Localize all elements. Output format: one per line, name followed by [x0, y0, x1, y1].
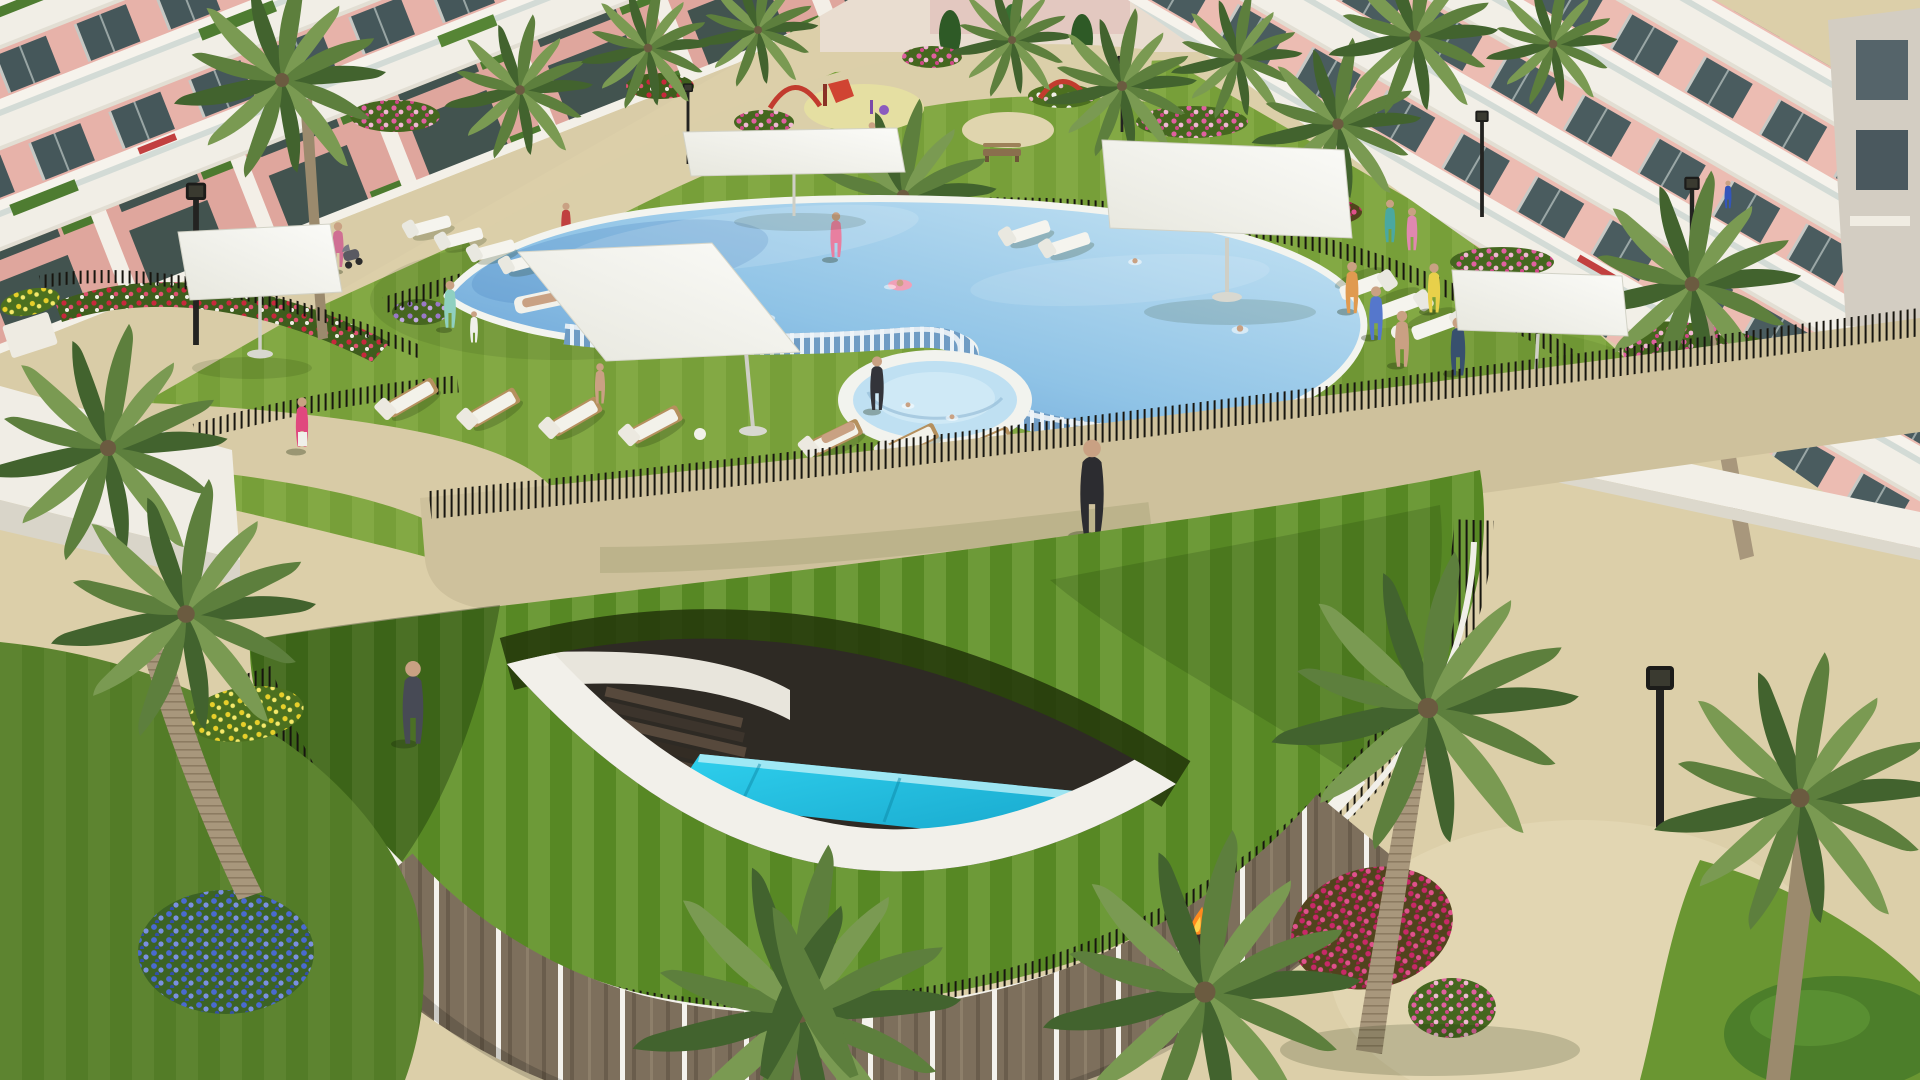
resort-rendering [0, 0, 1920, 1080]
scene-canvas [0, 0, 1920, 1080]
